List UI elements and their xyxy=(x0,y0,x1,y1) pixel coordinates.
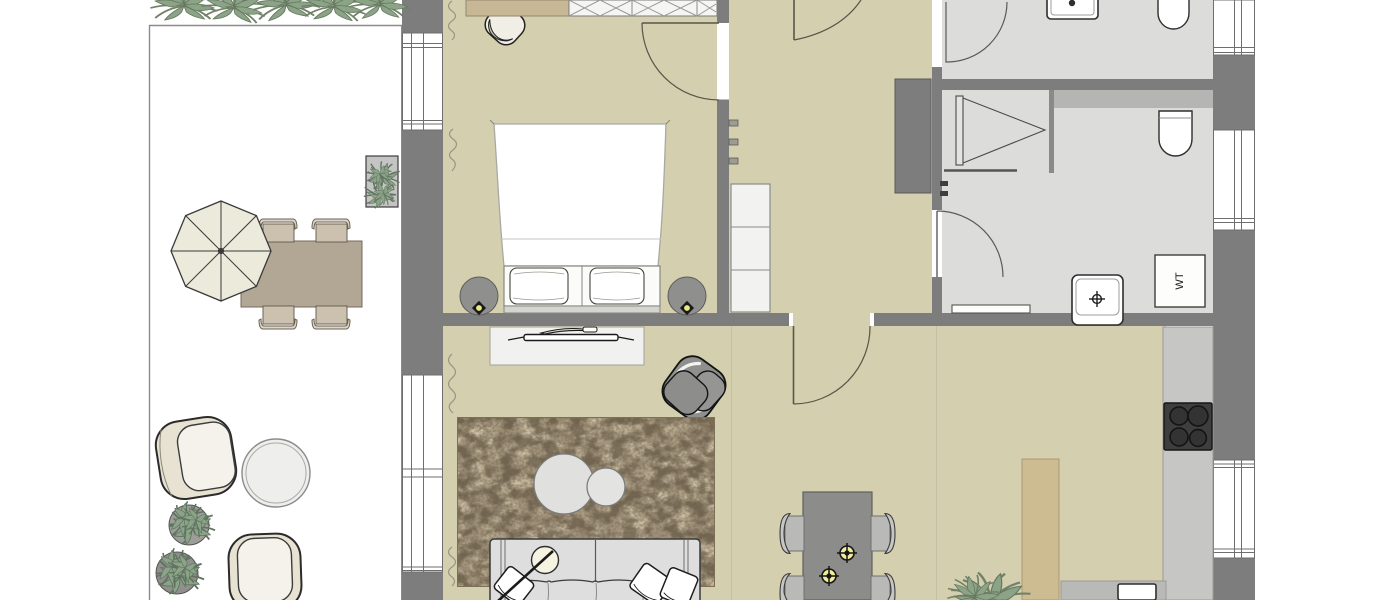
svg-text:WT: WT xyxy=(1174,272,1186,289)
